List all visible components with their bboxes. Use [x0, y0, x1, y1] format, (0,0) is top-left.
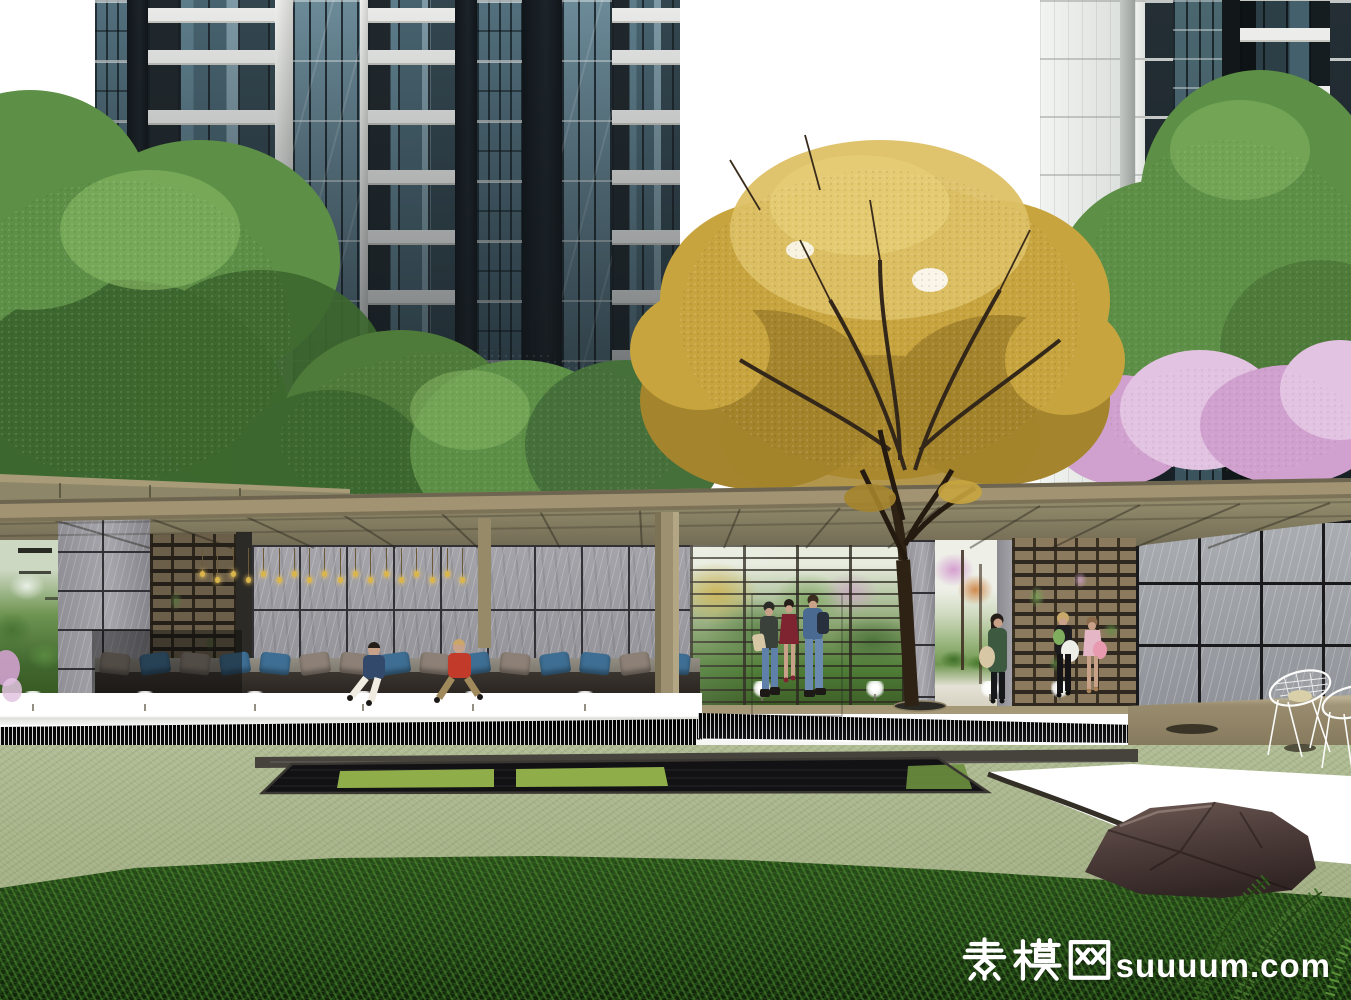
- foreground-layer: [0, 0, 1351, 1000]
- rendering-canvas: 素模网 suuuum.com: [0, 0, 1351, 1000]
- watermark-en-text: suuuum.com: [1116, 949, 1331, 982]
- boulder: [1085, 802, 1316, 898]
- watermark: 素模网 suuuum.com: [962, 936, 1331, 982]
- watermark-cn-glyphs: [962, 936, 1112, 982]
